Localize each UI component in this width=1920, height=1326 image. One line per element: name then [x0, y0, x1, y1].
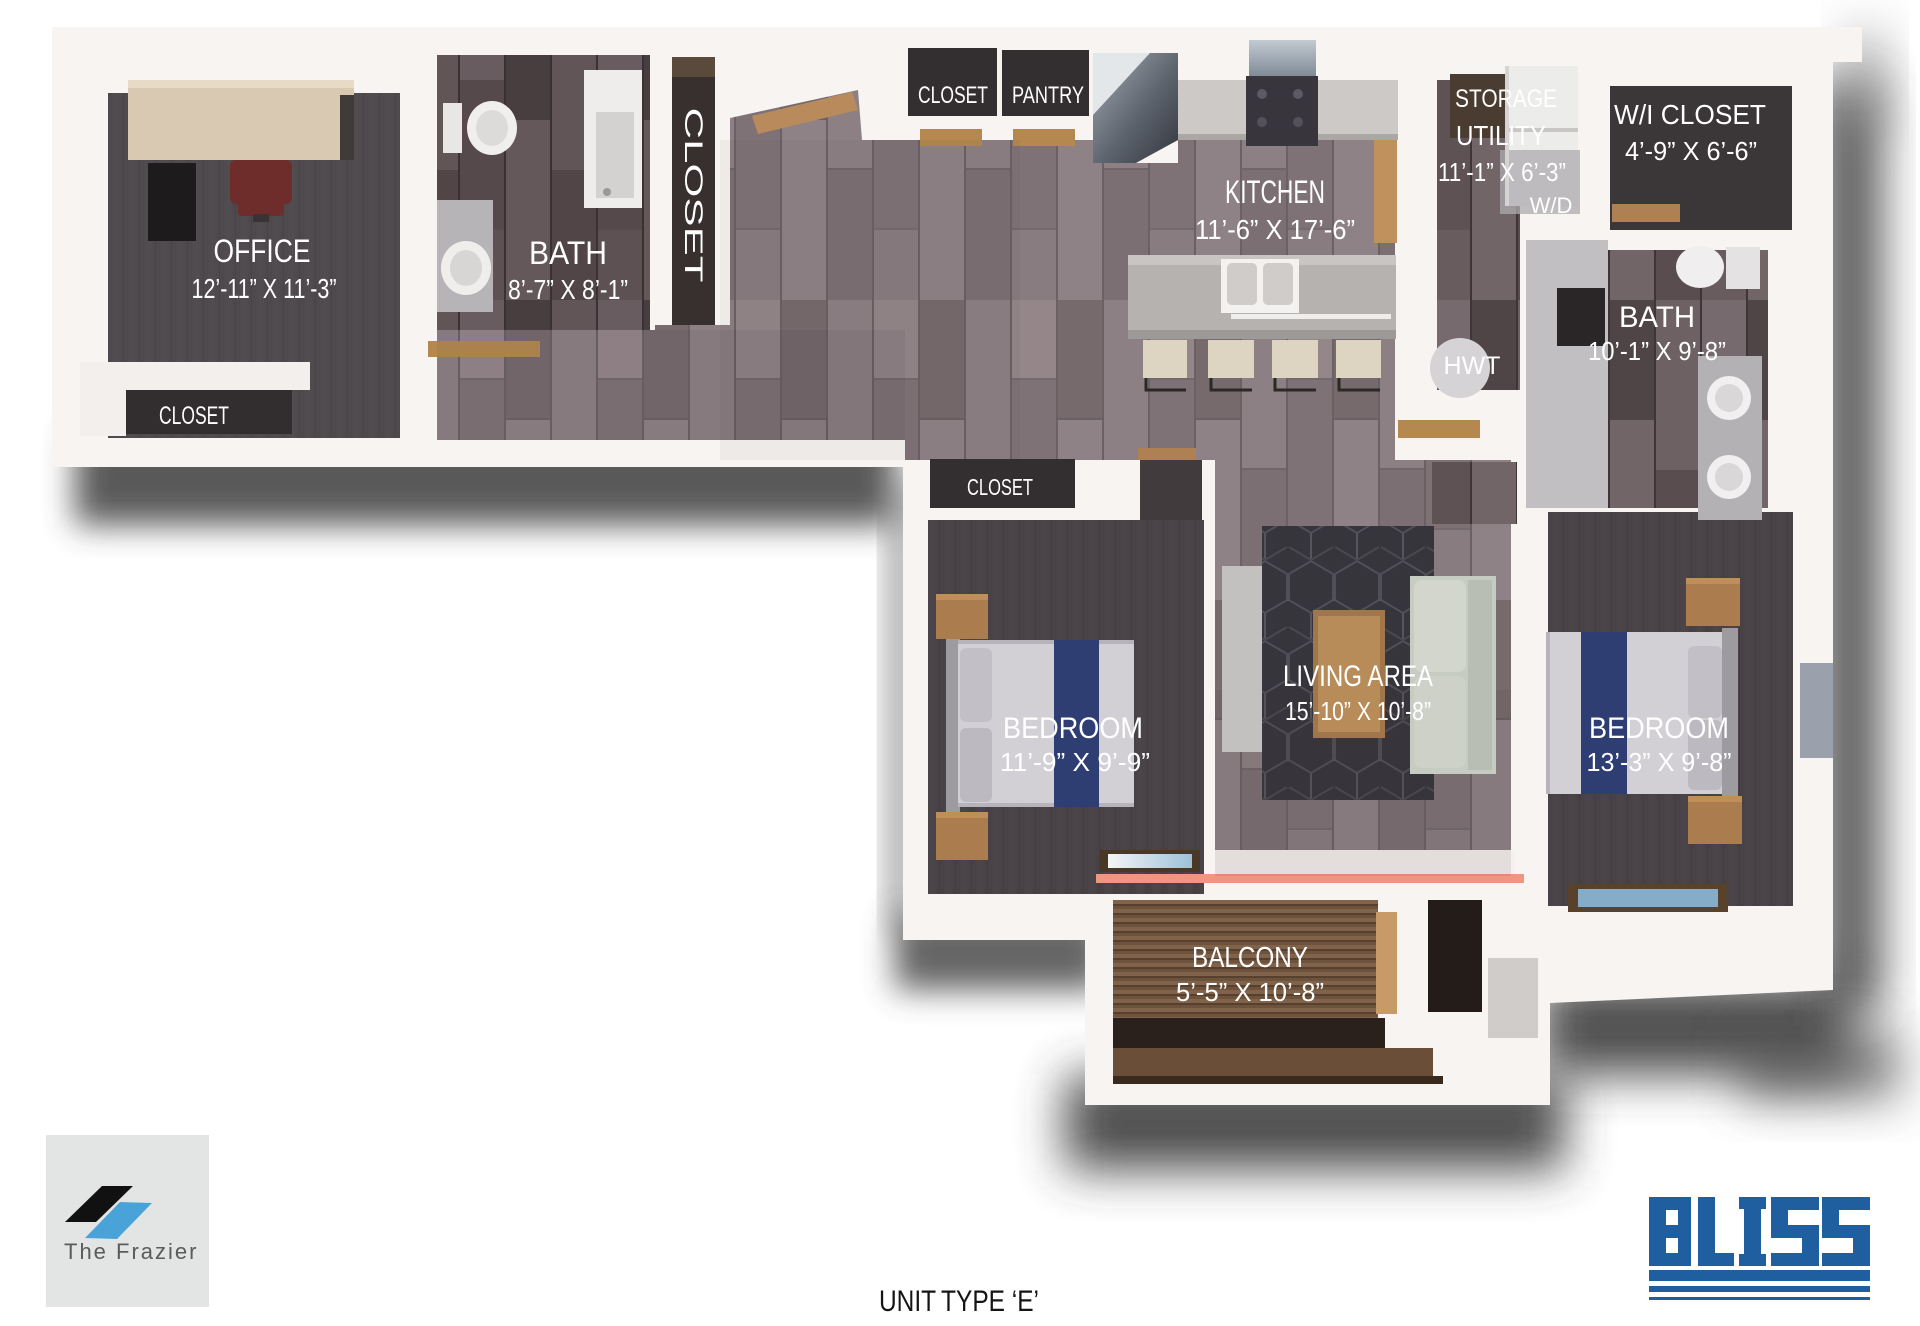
svg-text:BEDROOM: BEDROOM — [1589, 712, 1729, 745]
svg-text:8’-7” X 8’-1”: 8’-7” X 8’-1” — [508, 274, 628, 305]
svg-text:CLOSET: CLOSET — [679, 108, 707, 283]
svg-text:W/D: W/D — [1530, 193, 1573, 218]
svg-text:12’-11” X 11’-3”: 12’-11” X 11’-3” — [192, 273, 337, 304]
svg-text:PANTRY: PANTRY — [1012, 82, 1084, 109]
svg-text:4’-9” X 6’-6”: 4’-9” X 6’-6” — [1625, 136, 1757, 166]
svg-text:11’-1” X 6’-3”: 11’-1” X 6’-3” — [1438, 157, 1566, 187]
svg-text:KITCHEN: KITCHEN — [1225, 174, 1325, 210]
svg-text:BEDROOM: BEDROOM — [1003, 712, 1143, 745]
svg-text:W/I CLOSET: W/I CLOSET — [1614, 99, 1766, 130]
svg-text:CLOSET: CLOSET — [159, 402, 229, 430]
svg-text:15’-10” X 10’-8”: 15’-10” X 10’-8” — [1285, 696, 1431, 726]
svg-text:BATH: BATH — [529, 235, 607, 271]
svg-text:10’-1” X 9’-8”: 10’-1” X 9’-8” — [1588, 336, 1726, 366]
svg-text:LIVING AREA: LIVING AREA — [1283, 660, 1433, 693]
svg-text:13’-3” X 9’-8”: 13’-3” X 9’-8” — [1587, 747, 1732, 777]
svg-text:STORAGE: STORAGE — [1455, 85, 1557, 113]
svg-text:UNIT TYPE ‘E’: UNIT TYPE ‘E’ — [879, 1285, 1039, 1318]
svg-text:11’-6” X 17’-6”: 11’-6” X 17’-6” — [1195, 214, 1355, 245]
svg-text:The Frazier: The Frazier — [64, 1239, 198, 1264]
svg-text:OFFICE: OFFICE — [214, 233, 311, 269]
svg-text:BALCONY: BALCONY — [1192, 942, 1308, 974]
svg-text:BATH: BATH — [1619, 301, 1695, 334]
svg-text:CLOSET: CLOSET — [918, 82, 988, 109]
svg-text:11’-9” X 9’-9”: 11’-9” X 9’-9” — [1000, 747, 1150, 777]
svg-text:HWT: HWT — [1444, 352, 1501, 380]
svg-text:UTILITY: UTILITY — [1456, 120, 1546, 151]
svg-text:5’-5” X 10’-8”: 5’-5” X 10’-8” — [1176, 977, 1324, 1007]
svg-text:CLOSET: CLOSET — [967, 474, 1033, 500]
